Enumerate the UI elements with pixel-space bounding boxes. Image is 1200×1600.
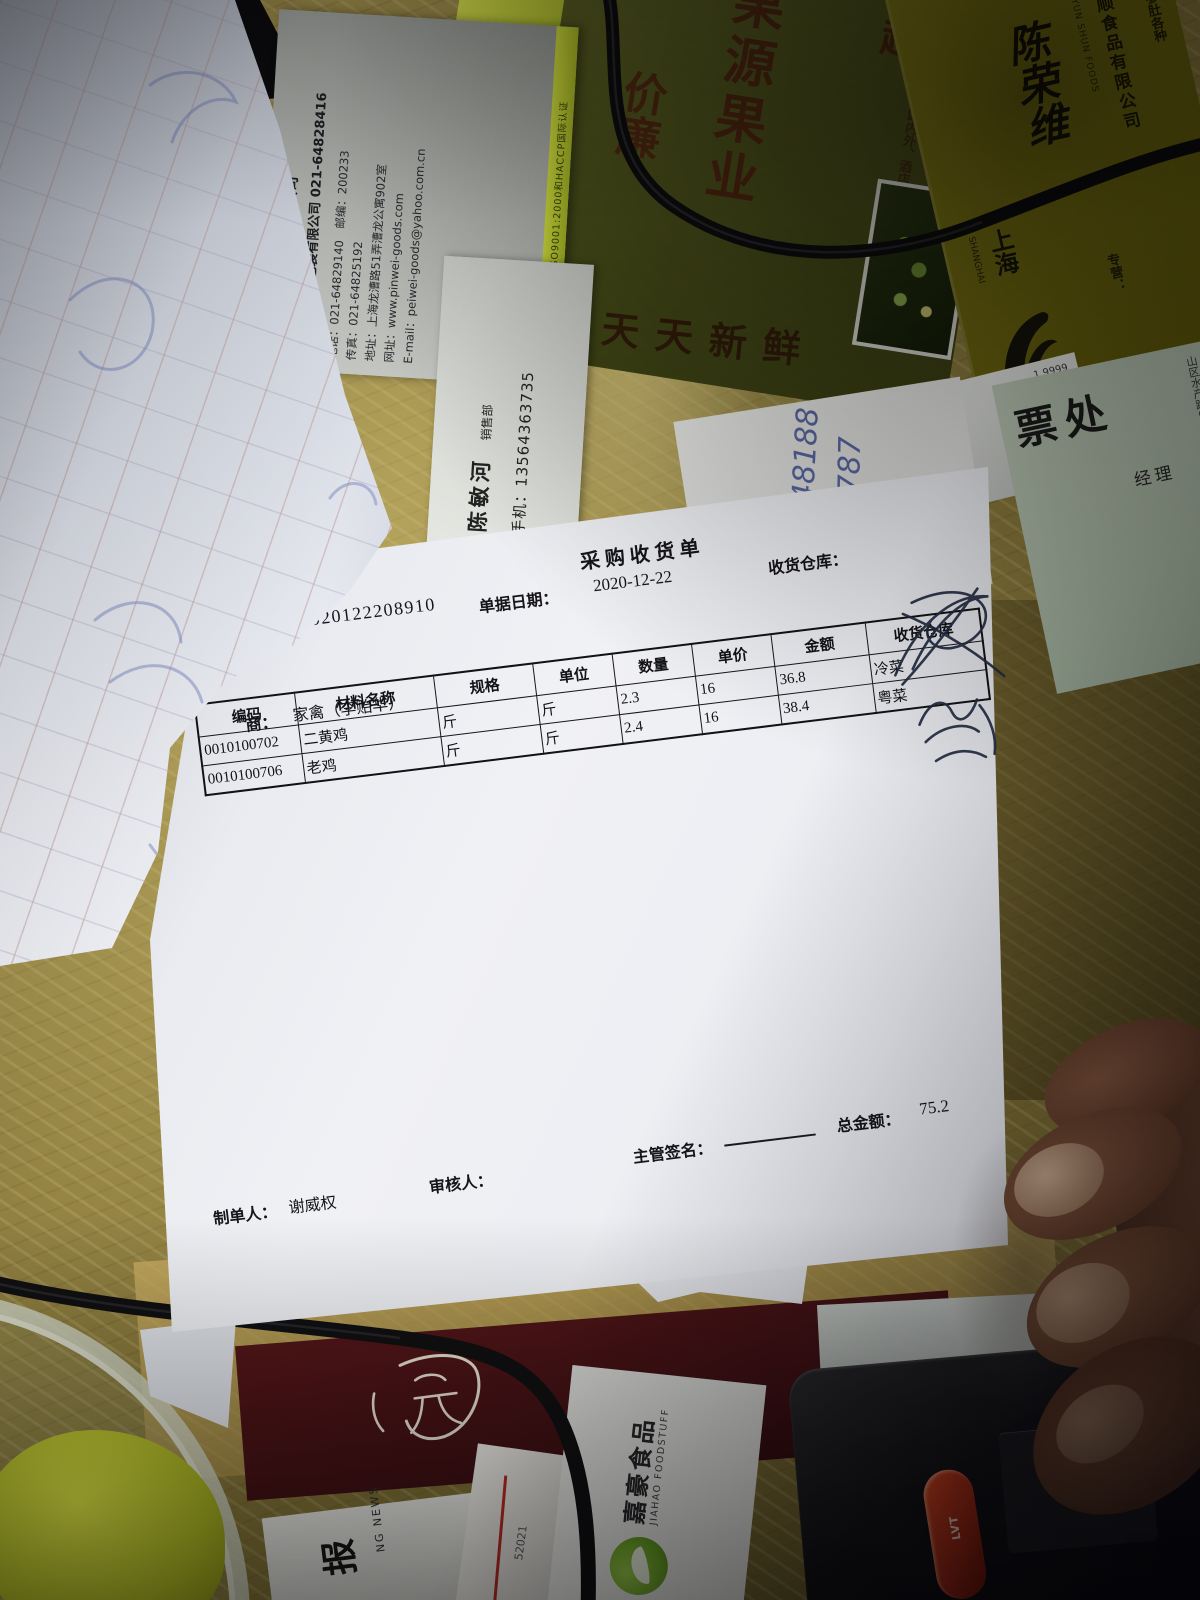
signature-scribble-1	[887, 595, 997, 675]
supervisor-sign-line	[723, 1120, 816, 1147]
receipt-title: 采购收货单	[578, 531, 706, 575]
reviewer-label: 审核人：	[428, 1166, 494, 1198]
warehouse-label: 收货仓库：	[767, 545, 849, 579]
signature-scribble-2	[917, 698, 979, 725]
total-label: 总金额：	[835, 1105, 901, 1137]
desk-photo: 市超 果源果业 价廉 天天新鲜 进口新鲜水果、各种国内外、酒店各种新鲜水产 送货…	[0, 0, 1200, 1600]
signature-scribbles	[814, 544, 1168, 803]
supervisor-label: 主管签名：	[631, 1134, 713, 1168]
piaochu-title: 经理	[1131, 458, 1177, 491]
date-label: 单据日期：	[477, 584, 559, 618]
chen-dept: 销售部	[479, 404, 495, 441]
total-value: 75.2	[918, 1096, 950, 1119]
